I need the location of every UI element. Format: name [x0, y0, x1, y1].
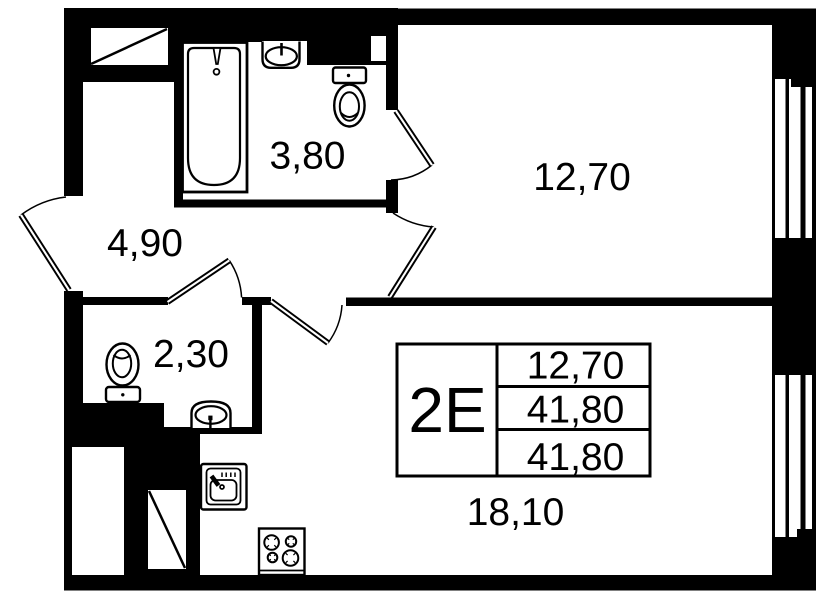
svg-text:18,10: 18,10: [467, 491, 565, 534]
svg-text:12,70: 12,70: [527, 345, 625, 388]
svg-text:2,30: 2,30: [153, 333, 229, 376]
svg-text:41,80: 41,80: [527, 436, 625, 479]
svg-text:4,90: 4,90: [107, 222, 183, 265]
svg-text:2E: 2E: [408, 374, 486, 446]
svg-text:3,80: 3,80: [270, 135, 346, 178]
svg-text:41,80: 41,80: [527, 389, 625, 432]
svg-text:12,70: 12,70: [533, 156, 631, 199]
